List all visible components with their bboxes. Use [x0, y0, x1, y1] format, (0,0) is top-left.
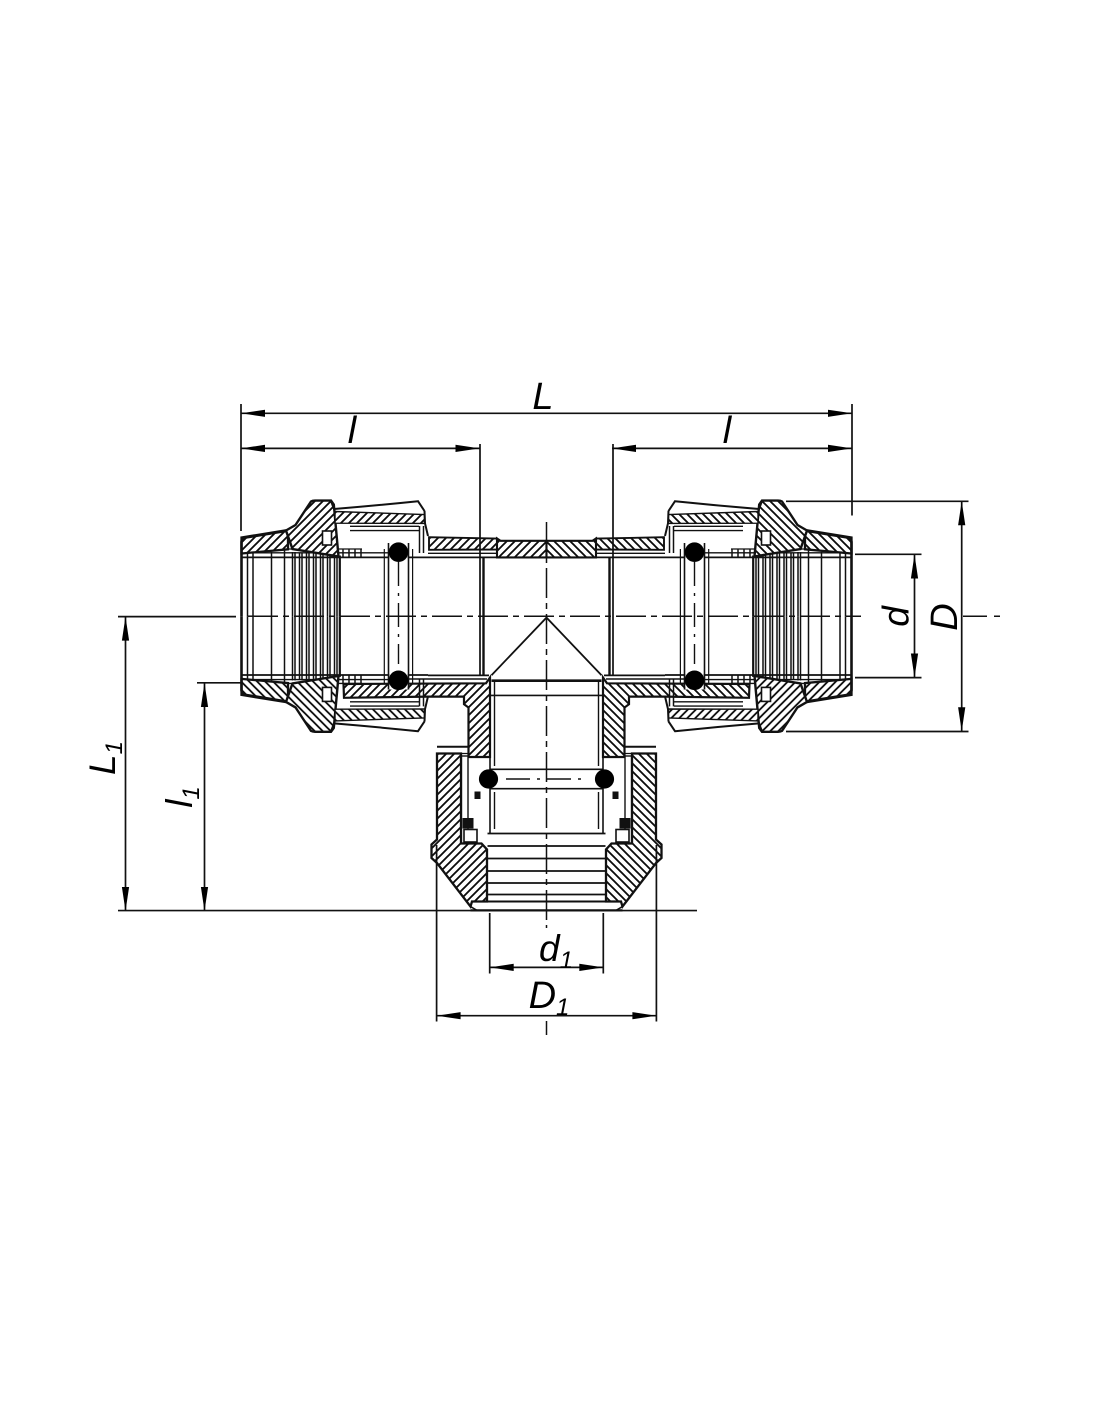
svg-text:l: l — [723, 410, 733, 452]
svg-text:D1: D1 — [529, 975, 570, 1021]
svg-text:l: l — [348, 410, 358, 452]
svg-text:D: D — [924, 603, 966, 630]
svg-text:l1: l1 — [159, 786, 205, 808]
svg-text:d: d — [876, 605, 917, 627]
svg-text:L1: L1 — [82, 741, 128, 775]
svg-text:L: L — [532, 376, 553, 418]
svg-text:d1: d1 — [539, 928, 573, 974]
